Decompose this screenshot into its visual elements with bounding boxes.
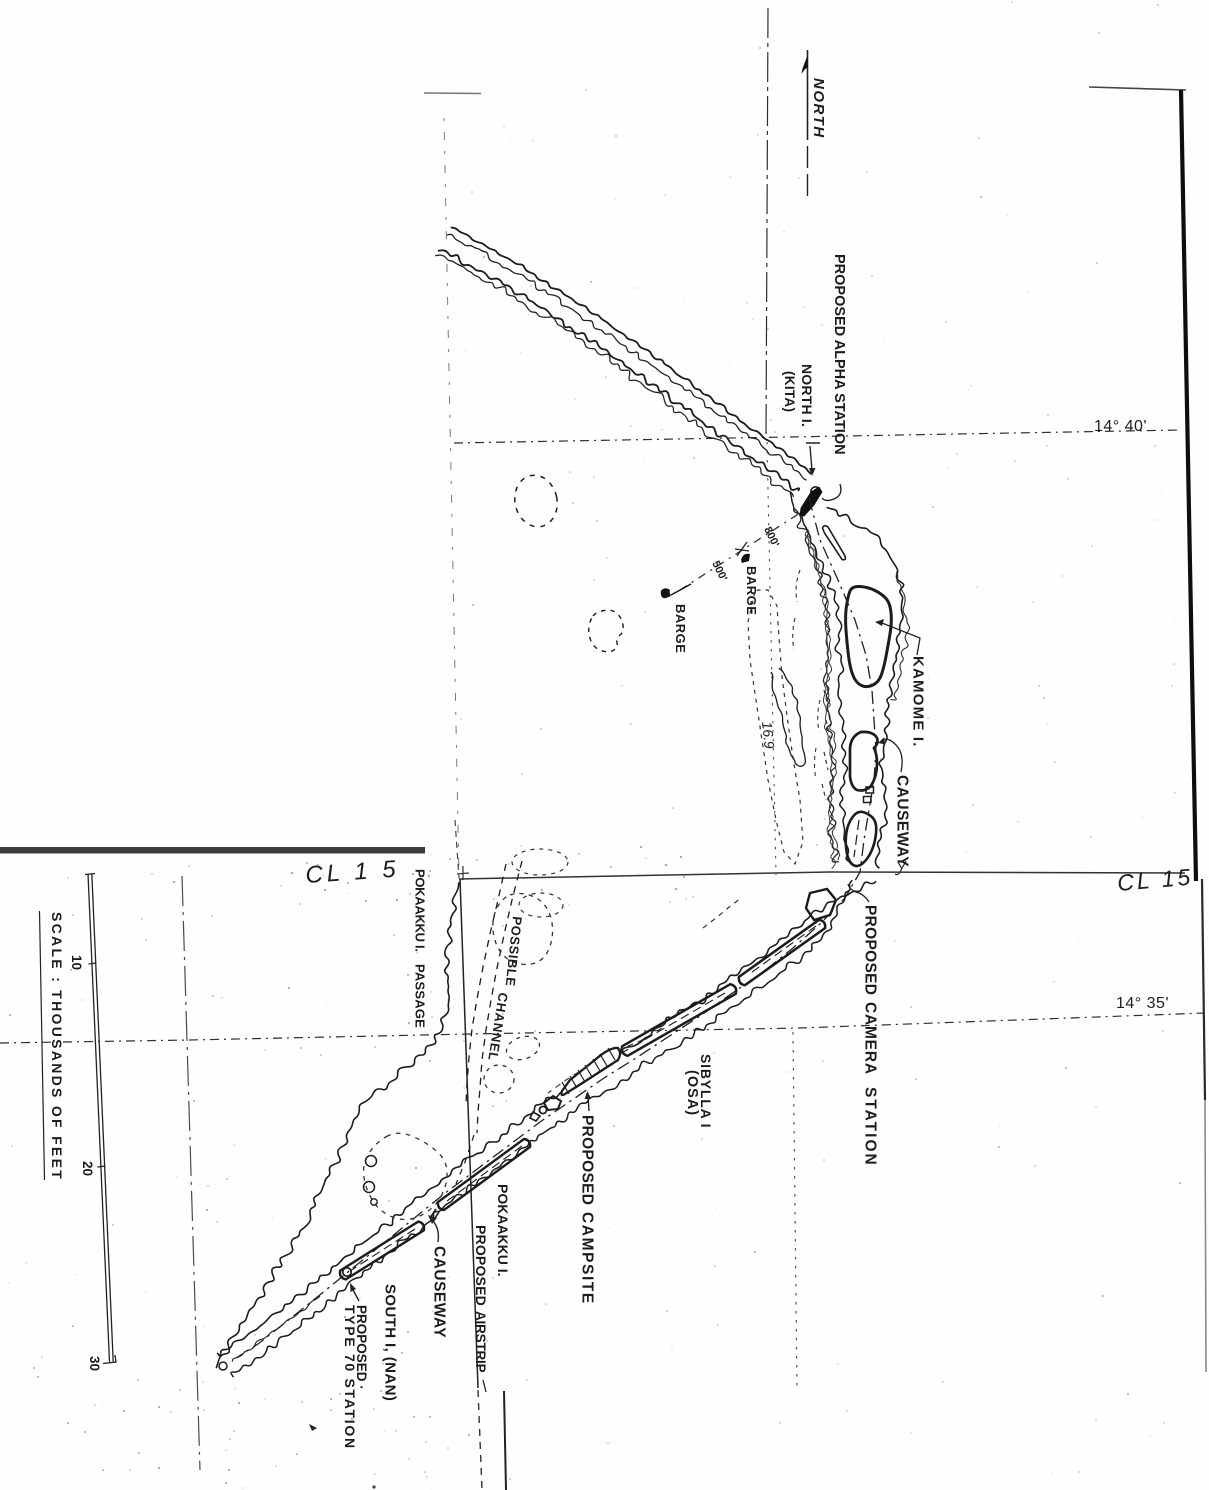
- svg-text:CAMPSITE: CAMPSITE: [578, 1212, 595, 1305]
- svg-text:CAMERA: CAMERA: [861, 1002, 878, 1075]
- svg-text:NORTH I.: NORTH I.: [799, 364, 815, 427]
- svg-text:14° 40': 14° 40': [1094, 418, 1147, 435]
- svg-text:PASSAGE: PASSAGE: [412, 964, 427, 1028]
- svg-text:14° 35': 14° 35': [1116, 995, 1169, 1012]
- svg-text:CAUSEWAY: CAUSEWAY: [430, 1246, 447, 1338]
- svg-text:POKAAKKU I.: POKAAKKU I.: [412, 869, 427, 952]
- svg-text:KAMOME I.: KAMOME I.: [910, 656, 927, 748]
- svg-text:POKAAKKU I.: POKAAKKU I.: [495, 1184, 511, 1277]
- svg-text:BARGE: BARGE: [744, 566, 759, 615]
- svg-text:30: 30: [87, 1356, 102, 1371]
- svg-text:NORTH: NORTH: [810, 78, 827, 139]
- svg-text:PROPOSED: PROPOSED: [473, 1225, 489, 1306]
- svg-text:20: 20: [80, 1161, 95, 1176]
- svg-text:PROPOSED: PROPOSED: [578, 1115, 595, 1205]
- svg-text:(KITA): (KITA): [782, 371, 797, 412]
- svg-text:SOUTH I, (NAN): SOUTH I, (NAN): [382, 1284, 399, 1401]
- svg-text:TYPE 70 STATION: TYPE 70 STATION: [342, 1305, 358, 1450]
- svg-text:(OSA): (OSA): [684, 1070, 700, 1116]
- svg-text:BARGE: BARGE: [673, 604, 688, 653]
- svg-text:AIRSTRIP: AIRSTRIP: [473, 1311, 488, 1373]
- svg-text:STATION: STATION: [861, 1087, 878, 1167]
- svg-text:SCALE : THOUSANDS OF FEET: SCALE : THOUSANDS OF FEET: [49, 912, 65, 1181]
- svg-text:CAUSEWAY: CAUSEWAY: [893, 775, 910, 867]
- svg-text:PROPOSED ALPHA STATION: PROPOSED ALPHA STATION: [831, 254, 847, 455]
- svg-text:16.9: 16.9: [759, 721, 778, 750]
- svg-text:PROPOSED: PROPOSED: [861, 905, 878, 995]
- svg-text:10: 10: [69, 955, 84, 970]
